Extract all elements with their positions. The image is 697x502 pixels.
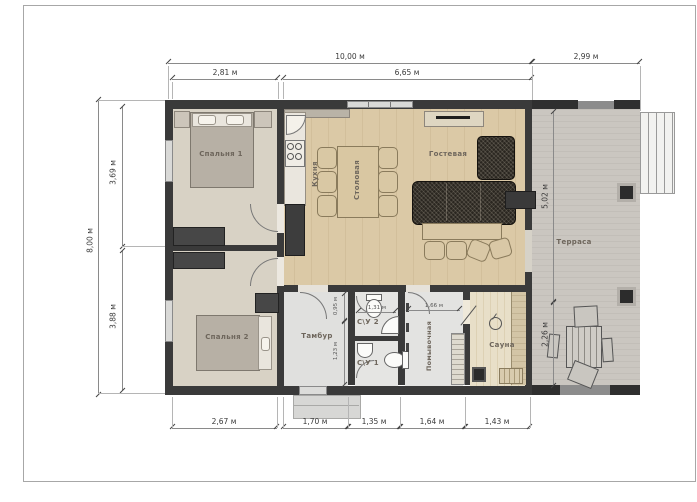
wc2-label: С\У 2 [357,318,385,326]
nightstand-right [254,111,272,128]
dim-terrace-upper: 5,02 м [541,180,550,214]
door-opening-washroom [406,285,430,292]
outdoor-chair-top [573,305,598,327]
entry-porch [293,395,361,419]
wardrobe-bedroom2 [173,252,225,269]
dining-chair [378,147,398,169]
extension-line [98,100,165,101]
door-opening-bedroom1 [277,204,284,233]
dim-line-top-living [283,79,532,80]
dim-line-vest-upper [344,294,345,320]
window-top-living [347,101,413,108]
extension-line [465,397,466,428]
wall-bedrooms-living [277,109,284,386]
extension-line [283,82,284,99]
dim-line-bottom-3 [348,428,400,429]
dining-chair [317,147,337,169]
terrace-bottom-beam-block-left [532,385,560,395]
dim-left-total: 8,00 м [86,224,95,258]
terrace-post [620,186,633,199]
washroom-label: Помывочная [425,316,433,376]
dim-vest-upper: 0,95 м [333,292,339,320]
terrace-bottom-beam-block-right [610,385,640,395]
bed2-pillow [261,337,270,351]
dim-line-bottom-1 [172,428,277,429]
dim-line-left-total [98,100,99,394]
extension-line [530,397,531,428]
bed2 [196,315,260,371]
washroom-bench [451,333,465,385]
dim-line-left-upper [122,107,123,246]
dim-bottom-5: 1,43 м [469,417,525,426]
extension-line [277,397,278,428]
dresser-bedroom2 [255,293,279,313]
terrace-steps [640,112,675,194]
dim-wc2-width: 1,31 м [363,305,391,311]
sauna-heater [472,367,486,382]
wall-bottom [165,386,532,395]
sauna-label: Сауна [486,341,518,349]
dim-top-bedrooms: 2,81 м [197,68,253,77]
kitchen-label: Кухня [311,156,319,192]
dim-line-top-total [168,63,532,64]
sofa-seam-1 [446,183,447,221]
floor-plan-sheet: Спальня 1 Спальня 2 Кухня Столовая Госте… [0,0,697,502]
stove-burner-2 [295,143,302,150]
sofa-side-table [505,191,536,209]
dining-chair [378,171,398,193]
bedroom2-label: Спальня 2 [197,333,257,341]
window-left-bedroom1 [165,140,173,182]
bedroom1-label: Спальня 1 [191,150,251,158]
extension-line [122,246,165,247]
entry-porch-step-line [293,405,359,406]
extension-line [283,397,284,428]
dim-terrace-lower: 2,26 м [541,318,550,352]
terrace-post [620,290,633,303]
kitchen-tall-unit [285,204,305,256]
dim-vest-lower: 1,23 м [333,337,339,365]
stove-burner-4 [295,153,302,160]
sofa-seam-2 [480,183,481,221]
outdoor-table [566,326,602,368]
extension-line [98,393,165,394]
extension-line [348,397,349,428]
extension-line [172,397,173,428]
dim-line-terrace-upper [553,112,554,302]
outdoor-bench-right [601,338,614,363]
dim-bottom-1: 2,67 м [196,417,252,426]
wc1-sink [357,343,373,358]
dim-top-total: 10,00 м [320,52,380,61]
door-opening-entry [299,386,327,395]
pouf [424,241,445,260]
dim-left-lower: 3,88 м [109,300,118,334]
dim-line-bottom-2 [283,428,348,429]
living-label: Гостевая [426,150,470,158]
wall-wc-washroom [398,292,405,385]
dining-chair [317,195,337,217]
washroom-hook [406,343,409,352]
dining-chair [317,171,337,193]
terrace-label: Терраса [552,238,596,246]
wardrobe-bedroom1 [173,227,225,246]
stove-burner-3 [287,153,294,160]
dining-label: Столовая [353,156,361,204]
pouf [446,241,467,260]
dim-line-bottom-5 [465,428,530,429]
extension-line [400,397,401,428]
dim-line-vest-lower [344,322,345,384]
terrace-top-beam-block-right [614,100,640,109]
coffee-table [422,223,502,240]
sofa [412,181,516,225]
extension-line [168,66,169,99]
dim-washroom-width: 1,66 м [420,303,448,309]
dim-bottom-4: 1,64 м [404,417,460,426]
extension-line [532,66,533,100]
extension-line [278,82,279,99]
dim-line-left-lower [122,251,123,390]
wall-vestibule-wc [348,292,355,385]
dining-chair [378,195,398,217]
dim-line-top-bedrooms [172,79,278,80]
dim-line-top-terrace [532,63,640,64]
bed1-pillow-left [198,115,216,125]
nightstand-left [174,111,190,128]
tv-screen [436,116,470,119]
extension-line [640,66,641,111]
dim-left-upper: 3,69 м [109,156,118,190]
dim-bottom-3: 1,35 м [346,417,402,426]
wc1-toilet-tank [402,351,409,369]
dim-top-terrace: 2,99 м [558,52,614,61]
sauna-shelf [499,368,523,384]
armchair [477,136,515,180]
bed1-pillow-right [226,115,244,125]
vestibule-label: Тамбур [296,332,338,340]
dim-line-washroom-width [408,310,460,311]
dim-top-living: 6,65 м [379,68,435,77]
wall-wc-divider [355,336,398,341]
dim-line-bottom-4 [400,428,465,429]
dim-bottom-2: 1,70 м [287,417,343,426]
door-opening-vestibule [298,285,328,292]
extension-line [172,82,173,99]
door-opening-terrace [525,230,532,272]
tv-unit [424,111,484,127]
dim-line-wc2-width [358,312,396,313]
wc1-label: С\У 1 [357,359,385,367]
dim-line-terrace-lower [553,302,554,385]
window-left-bedroom2 [165,300,173,342]
door-opening-bedroom2 [277,257,284,286]
stove-burner-1 [287,143,294,150]
washroom-hook [406,323,409,332]
